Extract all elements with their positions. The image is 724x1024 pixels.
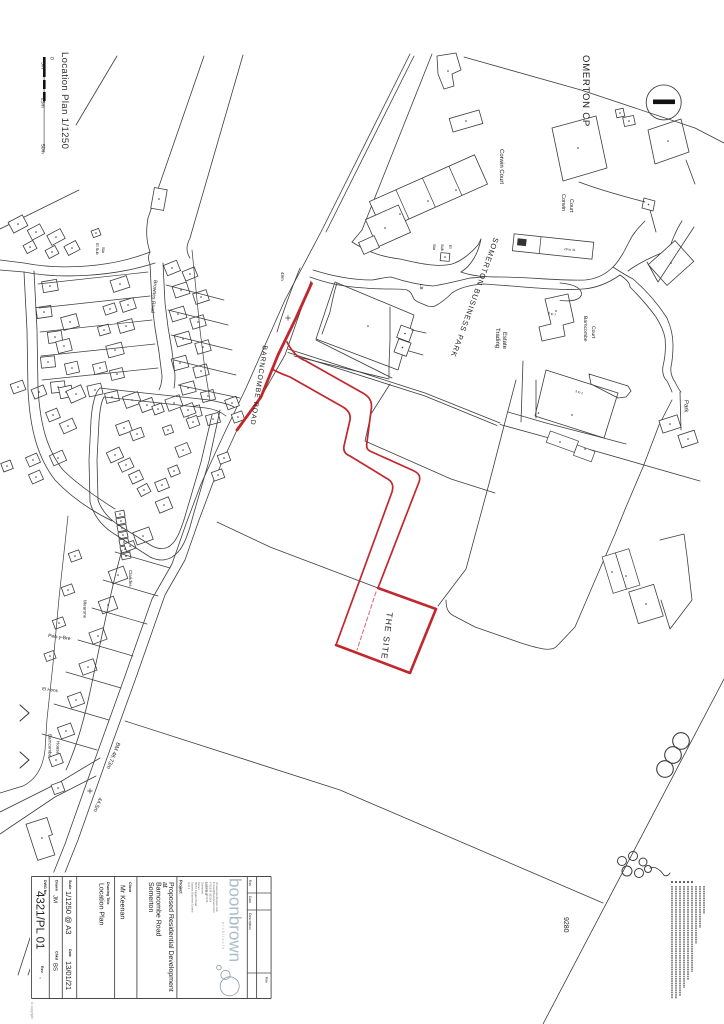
svg-text:4321/PL 01: 4321/PL 01 [34, 891, 46, 949]
svg-text:Barncombe Road: Barncombe Road [155, 882, 163, 937]
svg-text:Client: Client [128, 882, 132, 893]
svg-text:Estate: Estate [501, 332, 508, 350]
svg-text:Somerton: Somerton [147, 882, 154, 912]
svg-text:Description: Description [248, 913, 252, 930]
svg-text:Rev: Rev [265, 977, 269, 983]
svg-text:Court: Court [568, 199, 574, 213]
svg-text:0: 0 [49, 57, 55, 60]
svg-text:JM: JM [52, 895, 59, 903]
svg-text:boonbrown: boonbrown [226, 878, 245, 962]
svg-text:LB: LB [419, 284, 424, 290]
svg-text:Park: Park [683, 400, 690, 413]
svg-text:W www.boonbrown.com: W www.boonbrown.com [215, 882, 219, 913]
svg-text:55/57 Pagets Road: 55/57 Pagets Road [194, 882, 198, 906]
svg-text:Somerset: Somerset [201, 882, 205, 894]
svg-text:Corwin: Corwin [560, 194, 566, 211]
svg-text:Sta: Sta [101, 247, 106, 254]
svg-text:Spaces Business Centre: Spaces Business Centre [190, 882, 194, 913]
svg-text:a r c h i t e c t s: a r c h i t e c t s [221, 922, 226, 949]
svg-text:Court: Court [590, 326, 596, 339]
svg-text:13/01/21: 13/01/21 [64, 961, 73, 990]
svg-text:Chkd: Chkd [55, 951, 59, 960]
svg-text:1/1250 @ A3: 1/1250 @ A3 [64, 891, 73, 934]
svg-text:Sta: Sta [432, 244, 437, 251]
svg-text:25m: 25m [40, 98, 46, 108]
svg-text:House: House [56, 741, 61, 755]
svg-text:Date: Date [248, 896, 252, 903]
svg-text:El Sub: El Sub [95, 243, 100, 256]
svg-text:F 01935 431004: F 01935 431004 [208, 882, 212, 903]
svg-text:Rev.: Rev. [40, 966, 44, 973]
svg-text:© copyright: © copyright [30, 1002, 34, 1019]
svg-text:Drawn: Drawn [55, 880, 59, 891]
svg-text:5m: 5m [40, 62, 46, 69]
svg-text:Mr Keenan: Mr Keenan [119, 885, 126, 919]
svg-text:Sub: Sub [440, 244, 445, 252]
svg-text:Barncombe: Barncombe [582, 316, 588, 342]
svg-text:Drawing Title: Drawing Title [106, 882, 110, 905]
svg-text:Project: Project [179, 880, 184, 894]
svg-text:OMERTON CP: OMERTON CP [580, 55, 591, 127]
svg-text:Date: Date [68, 949, 72, 957]
svg-text:Barncombe: Barncombe [48, 734, 53, 758]
svg-text:Wearone: Wearone [83, 600, 88, 619]
svg-text:Location Plan: Location Plan [98, 883, 106, 926]
svg-text:Scale: Scale [68, 880, 72, 889]
svg-text:Corwin Court: Corwin Court [498, 149, 505, 184]
svg-text:-: - [37, 977, 43, 979]
svg-text:Unit 1: Unit 1 [187, 882, 191, 890]
svg-text:50m: 50m [40, 144, 46, 154]
svg-text:Trading: Trading [494, 328, 501, 348]
svg-text:El: El [448, 245, 453, 249]
svg-text:Yeovil: Yeovil [197, 882, 201, 890]
svg-text:BS: BS [52, 963, 59, 971]
svg-text:Rev: Rev [248, 880, 252, 886]
svg-text:9280: 9280 [562, 917, 569, 933]
svg-text:Location Plan 1/1250: Location Plan 1/1250 [59, 52, 70, 149]
svg-text:49m: 49m [280, 272, 285, 281]
svg-text:T 01935 462130: T 01935 462130 [205, 882, 209, 903]
svg-text:Clarides: Clarides [128, 570, 133, 587]
svg-text:E mail@boonbrown.com: E mail@boonbrown.com [212, 882, 216, 913]
svg-text:Proposed Residential Developme: Proposed Residential Development [167, 882, 175, 992]
